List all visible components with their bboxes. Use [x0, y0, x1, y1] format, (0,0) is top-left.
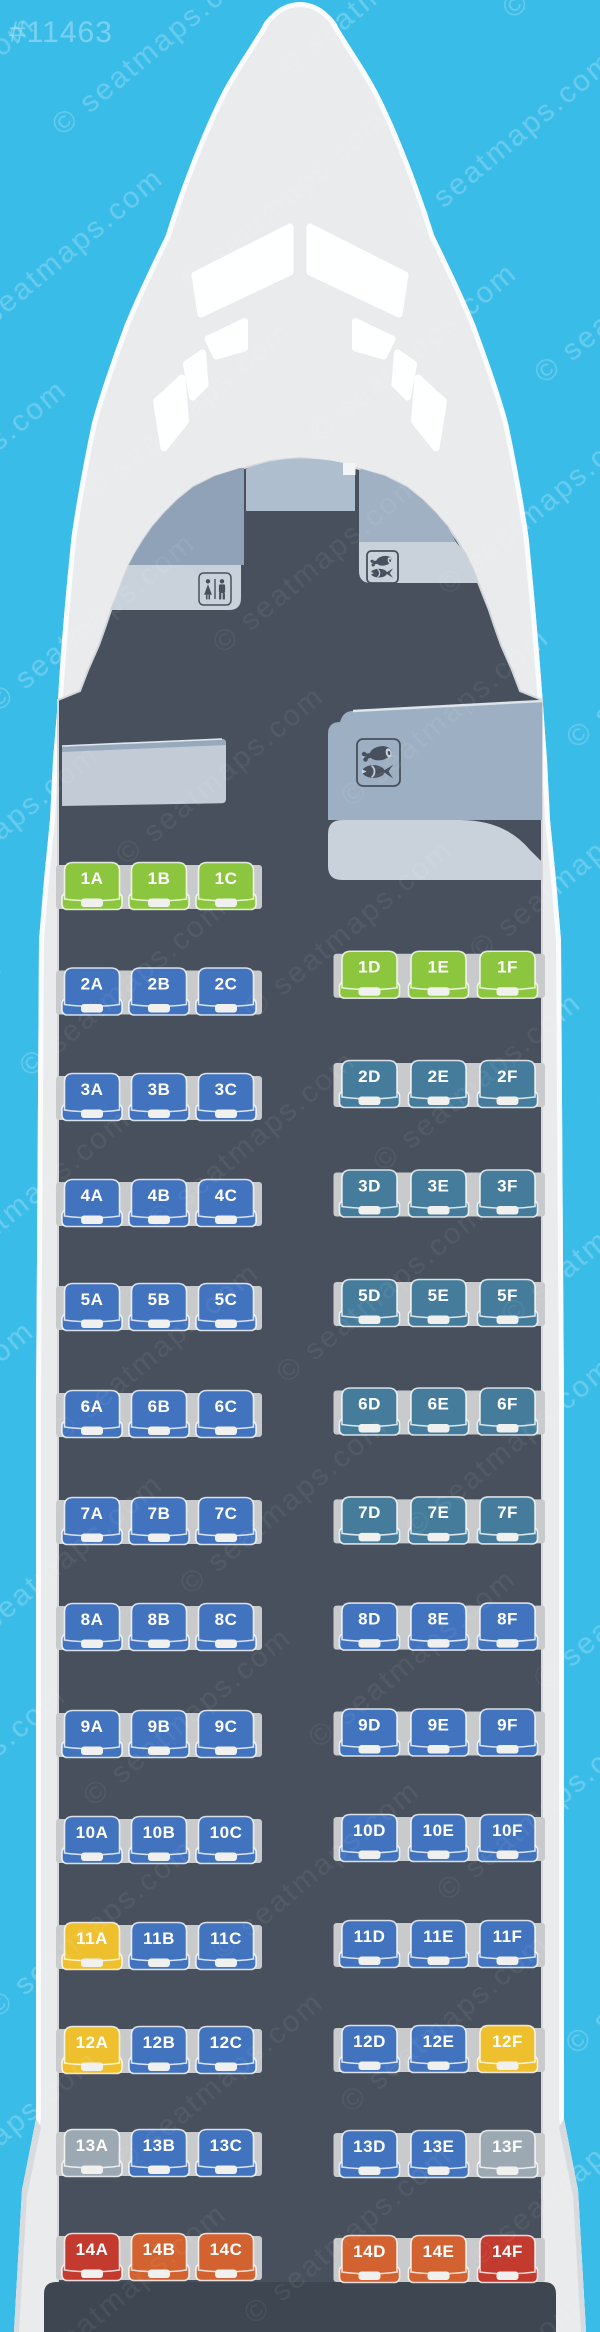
svg-text:#11463: #11463	[9, 16, 113, 49]
